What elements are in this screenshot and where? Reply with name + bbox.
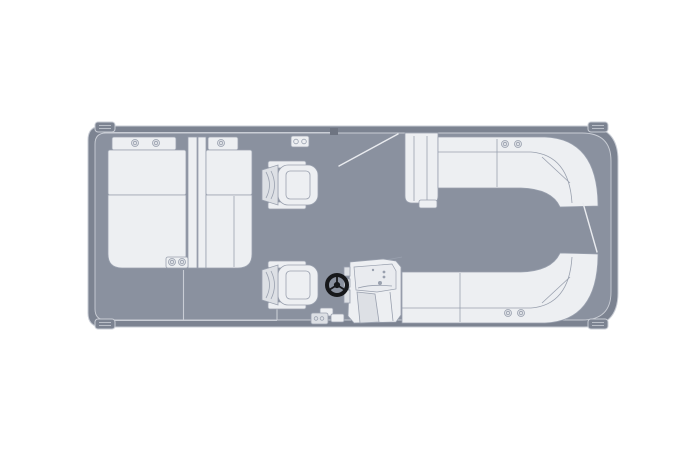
gauge-dot bbox=[383, 271, 386, 274]
gauge-dot bbox=[378, 281, 382, 285]
bench-cupholder bbox=[518, 310, 525, 317]
lounger-center-rail bbox=[198, 137, 206, 268]
gate-post bbox=[330, 128, 338, 135]
helm-captain-chair bbox=[262, 261, 318, 309]
lounger-backrest-left bbox=[108, 150, 186, 195]
cleat-stern-starboard bbox=[95, 319, 115, 329]
lounger-seat-right bbox=[206, 195, 252, 268]
lounger-backrest-right bbox=[206, 150, 252, 195]
armrest-cupholder bbox=[169, 259, 176, 266]
transom-fitting bbox=[311, 313, 328, 324]
floorplan-image bbox=[0, 0, 688, 459]
bench-cupholder bbox=[515, 141, 522, 148]
companion-captain-chair bbox=[262, 161, 318, 209]
gauge-dot bbox=[383, 276, 386, 279]
lounger-center-rail bbox=[188, 137, 197, 268]
cleat-bow-port bbox=[588, 122, 608, 132]
armrest-cupholder bbox=[179, 259, 186, 266]
bench-cupholder bbox=[505, 310, 512, 317]
lounger-cupholder bbox=[153, 140, 160, 147]
switch-panel bbox=[344, 267, 350, 276]
lounger-cupholder bbox=[218, 140, 225, 147]
bow-bench-port-corner-seat bbox=[405, 133, 438, 203]
lounger-headrest bbox=[112, 137, 176, 150]
seat-foot bbox=[419, 200, 437, 208]
cleat-bow-starboard bbox=[588, 319, 608, 329]
pontoon-floorplan-svg bbox=[0, 0, 688, 459]
wheel-hub bbox=[335, 283, 339, 287]
gauge-dot bbox=[372, 269, 374, 271]
lounger-cupholder bbox=[132, 140, 139, 147]
cleat-stern-port bbox=[95, 122, 115, 132]
bench-cupholder bbox=[502, 141, 509, 148]
console-base bbox=[357, 292, 379, 323]
stern-loungers bbox=[108, 137, 252, 268]
helm-step bbox=[331, 314, 344, 322]
